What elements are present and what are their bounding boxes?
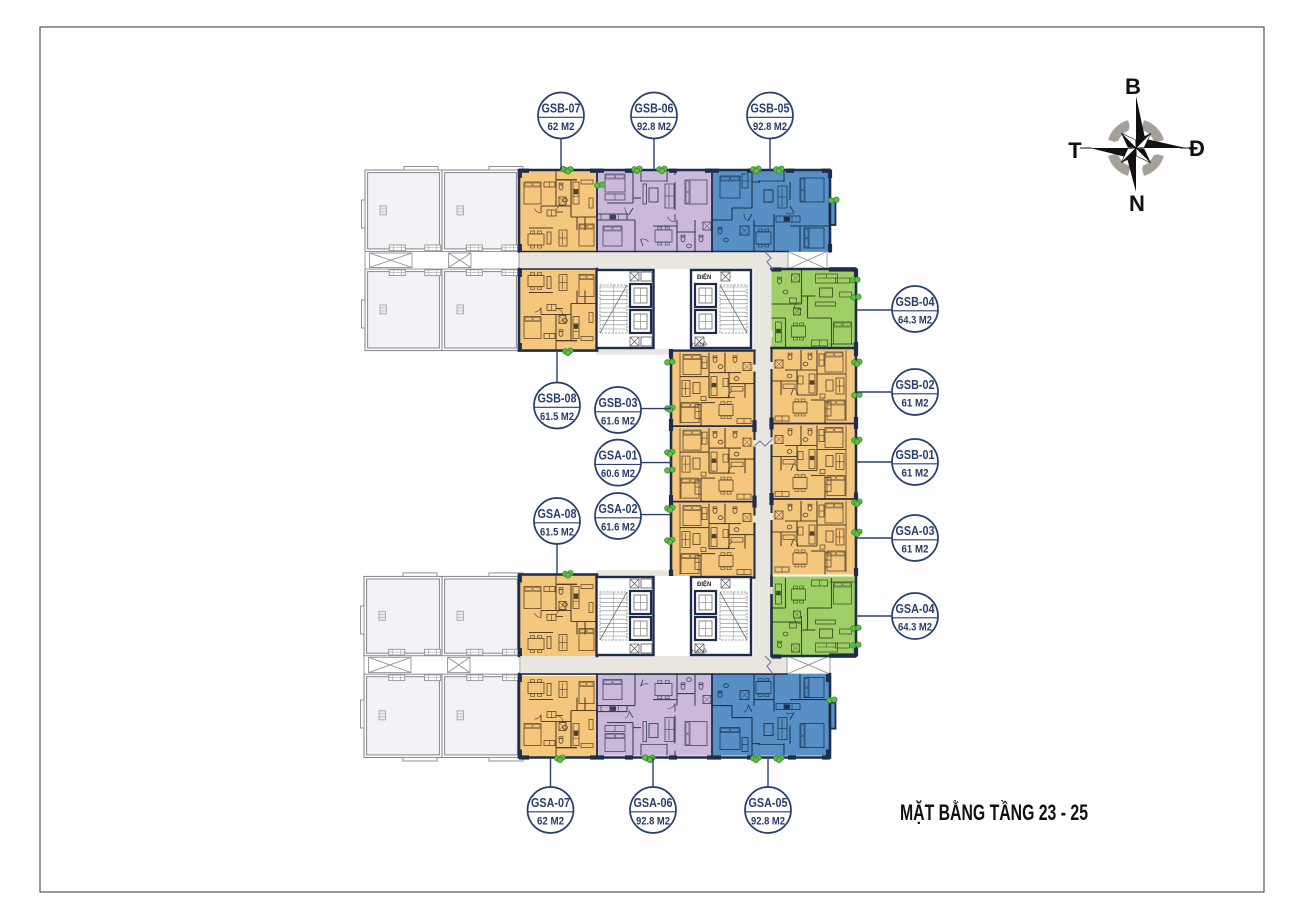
svg-text:GSA-05: GSA-05 bbox=[749, 795, 788, 810]
svg-text:GSA-01: GSA-01 bbox=[599, 448, 638, 463]
svg-text:92.8 M2: 92.8 M2 bbox=[637, 121, 671, 133]
svg-text:GSA-03: GSA-03 bbox=[896, 523, 935, 538]
svg-text:GSB-04: GSB-04 bbox=[896, 294, 936, 309]
svg-text:92.8 M2: 92.8 M2 bbox=[753, 121, 787, 133]
svg-text:61 M2: 61 M2 bbox=[902, 468, 929, 480]
svg-text:GSB-01: GSB-01 bbox=[896, 447, 935, 462]
svg-text:61.6 M2: 61.6 M2 bbox=[601, 522, 635, 534]
svg-text:GSA-07: GSA-07 bbox=[531, 795, 570, 810]
svg-text:Đ: Đ bbox=[1189, 136, 1205, 161]
svg-text:MẶT BẰNG TẦNG 23 - 25: MẶT BẰNG TẦNG 23 - 25 bbox=[900, 800, 1088, 825]
svg-text:61.6 M2: 61.6 M2 bbox=[601, 416, 635, 428]
svg-text:62 M2: 62 M2 bbox=[537, 816, 564, 828]
svg-text:61 M2: 61 M2 bbox=[902, 398, 929, 410]
svg-text:GSB-05: GSB-05 bbox=[751, 101, 790, 116]
svg-text:61.5 M2: 61.5 M2 bbox=[540, 411, 574, 423]
svg-text:H.KHỐI: H.KHỐI bbox=[692, 648, 708, 654]
svg-text:ĐIỆN: ĐIỆN bbox=[697, 580, 711, 588]
svg-text:62 M2: 62 M2 bbox=[548, 121, 575, 133]
svg-text:GSA-08: GSA-08 bbox=[538, 506, 577, 521]
svg-text:64.3 M2: 64.3 M2 bbox=[898, 622, 932, 634]
svg-text:64.3 M2: 64.3 M2 bbox=[898, 315, 932, 327]
svg-text:N: N bbox=[1129, 191, 1145, 216]
svg-text:H.KHỐI: H.KHỐI bbox=[692, 341, 708, 347]
svg-text:GSB-02: GSB-02 bbox=[896, 377, 935, 392]
svg-text:GSA-04: GSA-04 bbox=[896, 601, 936, 616]
svg-text:92.8 M2: 92.8 M2 bbox=[636, 816, 670, 828]
svg-text:61.5 M2: 61.5 M2 bbox=[540, 527, 574, 539]
svg-text:92.8 M2: 92.8 M2 bbox=[751, 816, 785, 828]
svg-text:GSA-06: GSA-06 bbox=[634, 795, 673, 810]
svg-text:GSB-06: GSB-06 bbox=[635, 101, 674, 116]
svg-text:T: T bbox=[1068, 138, 1082, 163]
svg-text:61 M2: 61 M2 bbox=[902, 544, 929, 556]
svg-text:ĐIỆN: ĐIỆN bbox=[697, 273, 711, 281]
svg-text:60.6 M2: 60.6 M2 bbox=[601, 468, 635, 480]
svg-text:GSA-02: GSA-02 bbox=[599, 501, 638, 516]
svg-text:GSB-03: GSB-03 bbox=[599, 395, 638, 410]
svg-text:B: B bbox=[1125, 74, 1141, 99]
svg-text:GSB-08: GSB-08 bbox=[538, 391, 577, 406]
svg-text:GSB-07: GSB-07 bbox=[542, 101, 581, 116]
